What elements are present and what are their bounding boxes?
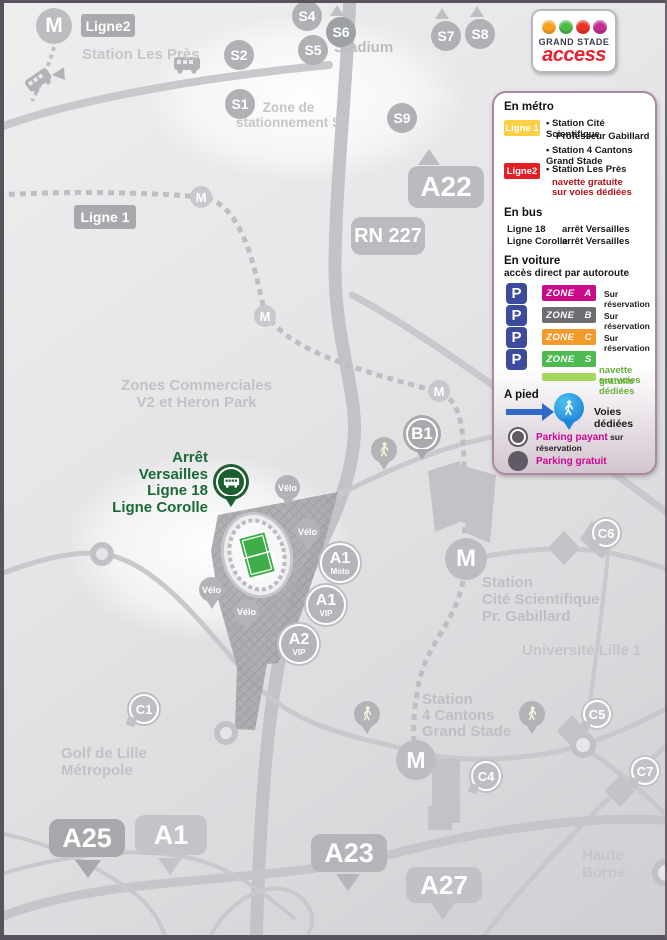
parking-c4: C4 — [471, 761, 501, 791]
gate-a1-vip-top: A1 — [316, 593, 336, 609]
pin-velo-1: Vélo — [275, 475, 300, 500]
walk-arrow-icon — [506, 409, 542, 415]
label-zc-line1: Zones Commerciales — [99, 377, 294, 394]
badge-a1-label: A1 — [154, 820, 189, 851]
metro-m-letter: M — [45, 14, 63, 38]
m-letter: M — [260, 309, 271, 324]
parking-c7: C7 — [631, 757, 659, 785]
label-4-cantons: Station 4 Cantons Grand Stade — [422, 692, 511, 740]
walking-person-icon — [562, 400, 576, 417]
gate-a1-moto-sub: Moto — [330, 568, 349, 576]
legend-ligne1-label: Ligne 1 — [505, 123, 538, 134]
block-a23 — [428, 806, 452, 830]
parking-c6: C6 — [592, 519, 620, 547]
legend-ligne2-note2: sur voies dédiées — [552, 187, 632, 198]
legend-ligne2-badge: Ligne2 — [504, 163, 540, 179]
label-zc-line2: V2 et Heron Park — [99, 394, 294, 411]
label-arret-versailles: Arrêt Versailles Ligne 18 Ligne Corolle — [108, 450, 208, 516]
arrow-up-a22 — [418, 149, 440, 165]
gate-a2-vip-top: A2 — [289, 632, 309, 648]
stop-s1-label: S1 — [231, 96, 248, 112]
parking-c5: C5 — [583, 700, 611, 728]
parking-c4-label: C4 — [478, 769, 495, 784]
stop-s7-label: S7 — [437, 28, 454, 44]
badge-rn227-label: RN 227 — [354, 225, 422, 248]
diamond-universite — [548, 531, 580, 565]
pin-velo-4: Vélo — [234, 599, 259, 624]
stop-s4: S4 — [292, 1, 322, 31]
stop-s6: S6 — [326, 17, 356, 47]
label-station-les-pres: Station Les Près — [82, 47, 200, 64]
velo-label: Vélo — [298, 527, 317, 537]
zone-s-chip: ZONE S — [542, 351, 596, 367]
velo-label: Vélo — [278, 483, 297, 493]
gate-a1-moto-top: A1 — [330, 551, 350, 567]
legend-ligne2-stop: • Station Les Près — [546, 164, 626, 175]
zone-a-chip: ZONE A — [542, 285, 596, 301]
metro-station-small-1: M — [190, 186, 212, 208]
parking-c1: C1 — [129, 694, 159, 724]
velo-label: Vélo — [202, 585, 221, 595]
logo-car-icon — [593, 20, 607, 34]
m-letter: M — [456, 545, 476, 573]
legend-bus-heading: En bus — [504, 207, 542, 219]
stop-s7: S7 — [431, 21, 461, 51]
pin-velo-2: Vélo — [295, 519, 320, 544]
stop-s5-label: S5 — [304, 42, 321, 58]
label-universite: Université Lille 1 — [522, 643, 641, 660]
arret-line1: Arrêt Versailles — [108, 450, 208, 483]
legend-bus-line-18: Ligne 18 — [507, 224, 546, 235]
gate-a2-vip: A2 VIP — [279, 624, 319, 664]
logo-transport-icons — [533, 20, 615, 34]
p-icon-zone-a: P — [506, 283, 527, 304]
metro-station-small-2: M — [254, 305, 276, 327]
badge-rn227: RN 227 — [351, 217, 425, 255]
parking-c5-label: C5 — [589, 707, 606, 722]
gate-a1-moto: A1 Moto — [320, 543, 360, 583]
zone-b-label: ZONE B — [546, 310, 592, 321]
zone-a-label: ZONE A — [546, 288, 592, 299]
zone-a-note: Sur réservation — [604, 289, 655, 309]
p-icon-zone-c: P — [506, 327, 527, 348]
logo-bus-icon — [542, 20, 556, 34]
pin-pedestrian-3 — [519, 701, 545, 727]
access-map: M Ligne2 Ligne 1 Station Les Près Stadiu… — [0, 0, 667, 940]
arrow-down-a25 — [75, 860, 101, 878]
ligne2-map-badge: Ligne2 — [81, 14, 135, 37]
legend-ligne1-stop1b: Professeur Gabillard — [556, 131, 649, 142]
zone-s-label: ZONE S — [546, 354, 591, 365]
arret-line3: Ligne Corolle — [108, 500, 208, 517]
arrow-down-a1 — [158, 858, 182, 875]
badge-a27: A27 — [406, 867, 482, 903]
label-cite-scientifique: Station Cité Scientifique Pr. Gabillard — [482, 574, 600, 625]
legend-walk-heading: A pied — [504, 389, 539, 401]
parking-c7-label: C7 — [637, 764, 654, 779]
arrow-up-s7 — [435, 8, 449, 19]
walking-person-icon — [378, 442, 391, 458]
m-letter: M — [196, 190, 207, 205]
p-letter: P — [511, 351, 521, 368]
badge-a23: A23 — [311, 834, 387, 872]
stop-s1: S1 — [225, 89, 255, 119]
ligne1-map-badge: Ligne 1 — [74, 205, 136, 229]
arrow-up-s8 — [470, 6, 484, 17]
badge-a27-label: A27 — [420, 870, 468, 901]
label-cite-line2: Cité Scientifique — [482, 591, 600, 608]
stop-s2-label: S2 — [230, 47, 247, 63]
ring-west — [93, 545, 111, 563]
legend-car-subheading: accès direct par autoroute — [504, 268, 629, 279]
walk-pin-icon — [554, 393, 584, 423]
label-golf-line2: Métropole — [61, 762, 147, 779]
stop-s4-label: S4 — [298, 8, 315, 24]
label-cite-line3: Pr. Gabillard — [482, 608, 600, 625]
parking-paid-label: Parking payant — [536, 432, 608, 443]
walking-person-icon — [526, 706, 539, 722]
legend-ligne2-label: Ligne2 — [507, 166, 538, 177]
pin-arret-versailles — [213, 464, 249, 500]
bus-icon-west — [24, 67, 55, 96]
arrow-up-s6 — [330, 5, 344, 16]
badge-a23-label: A23 — [324, 838, 374, 869]
pin-b1-ring — [406, 418, 438, 450]
p-icon-zone-s: P — [506, 349, 527, 370]
p-letter: P — [511, 329, 521, 346]
gate-a1-vip: A1 VIP — [306, 585, 346, 625]
legend-ligne1-badge: Ligne 1 — [504, 120, 540, 136]
zone-s-note2: sur voies dédiées — [599, 375, 655, 397]
ligne1-map-label: Ligne 1 — [80, 209, 129, 225]
gate-a1-vip-sub: VIP — [320, 610, 333, 618]
badge-a25: A25 — [49, 819, 125, 857]
p-letter: P — [511, 307, 521, 324]
stop-s2: S2 — [224, 40, 254, 70]
ring-golf — [217, 724, 235, 742]
metro-station-small-3: M — [428, 380, 450, 402]
m-letter: M — [406, 747, 425, 774]
label-haute-borne: Haute Borne — [582, 848, 665, 881]
legend-bus-stop-18: arrêt Versailles — [562, 224, 630, 235]
badge-a1: A1 — [135, 815, 207, 855]
label-zones-commerciales: Zones Commerciales V2 et Heron Park — [99, 377, 294, 411]
legend-bus-line-corolle: Ligne Corolle — [507, 236, 568, 247]
stop-s9: S9 — [387, 103, 417, 133]
pin-b1: B1 — [403, 415, 441, 453]
pin-arret-ring — [216, 467, 246, 497]
parking-free-icon — [508, 451, 528, 471]
zone-c-chip: ZONE C — [542, 329, 596, 345]
badge-a22-label: A22 — [420, 171, 471, 203]
legend-metro-heading: En métro — [504, 101, 554, 113]
gate-a2-vip-sub: VIP — [293, 649, 306, 657]
legend-bus-stop-corolle: arrêt Versailles — [562, 236, 630, 247]
metro-station-4-cantons: M — [396, 740, 436, 780]
parking-paid-row: Parking payant sur réservation — [536, 432, 655, 454]
stop-s5: S5 — [298, 35, 328, 65]
zone-c-note: Sur réservation — [604, 333, 655, 353]
parking-c6-label: C6 — [598, 526, 615, 541]
zone-c-label: ZONE C — [546, 332, 592, 343]
legend-walk-label: Voies dédiées — [594, 406, 655, 430]
m-letter: M — [434, 384, 445, 399]
label-cantons-line1: Station — [422, 692, 511, 708]
arrow-down-a27 — [431, 903, 455, 920]
logo-subtitle: access — [533, 44, 615, 67]
direction-arrow-nw — [52, 67, 65, 80]
legend-panel: En métro Ligne 1 • Station Cité Scientif… — [492, 91, 657, 475]
p-icon-zone-b: P — [506, 305, 527, 326]
label-golf-line1: Golf de Lille — [61, 745, 147, 762]
parking-free-label: Parking gratuit — [536, 456, 607, 467]
stop-s6-label: S6 — [332, 24, 349, 40]
velo-label: Vélo — [237, 607, 256, 617]
badge-a25-label: A25 — [62, 823, 112, 854]
p-letter: P — [511, 285, 521, 302]
stop-s8-label: S8 — [471, 26, 488, 42]
label-cantons-line3: Grand Stade — [422, 724, 511, 740]
label-golf: Golf de Lille Métropole — [61, 745, 147, 779]
zone-b-chip: ZONE B — [542, 307, 596, 323]
pin-pedestrian-1 — [371, 437, 397, 463]
stop-s8: S8 — [465, 19, 495, 49]
badge-a22: A22 — [408, 166, 484, 208]
arrow-down-a23 — [336, 874, 360, 891]
stop-s9-label: S9 — [393, 110, 410, 126]
arret-line2: Ligne 18 — [108, 483, 208, 500]
metro-station-cite-scientifique: M — [445, 538, 487, 580]
walking-person-icon — [361, 706, 374, 722]
logo-walk-icon — [559, 20, 573, 34]
label-cite-line1: Station — [482, 574, 600, 591]
pin-velo-3: Vélo — [199, 577, 224, 602]
ligne2-map-label: Ligne2 — [85, 18, 130, 34]
grand-stade-access-logo: GRAND STADE access — [531, 9, 617, 73]
pin-pedestrian-2 — [354, 701, 380, 727]
zone-s-shuttle-bar — [542, 373, 596, 381]
parking-c1-label: C1 — [136, 702, 153, 717]
label-cantons-line2: 4 Cantons — [422, 708, 511, 724]
stadium-parking-hatch-tail — [235, 664, 267, 730]
parking-paid-icon — [508, 427, 528, 447]
label-zone-s-line2: stationnement S — [231, 116, 346, 131]
logo-moto-icon — [576, 20, 590, 34]
legend-car-heading: En voiture — [504, 255, 560, 267]
zone-b-note: Sur réservation — [604, 311, 655, 331]
ring-c5 — [573, 735, 593, 755]
metro-logo: M — [36, 8, 72, 44]
